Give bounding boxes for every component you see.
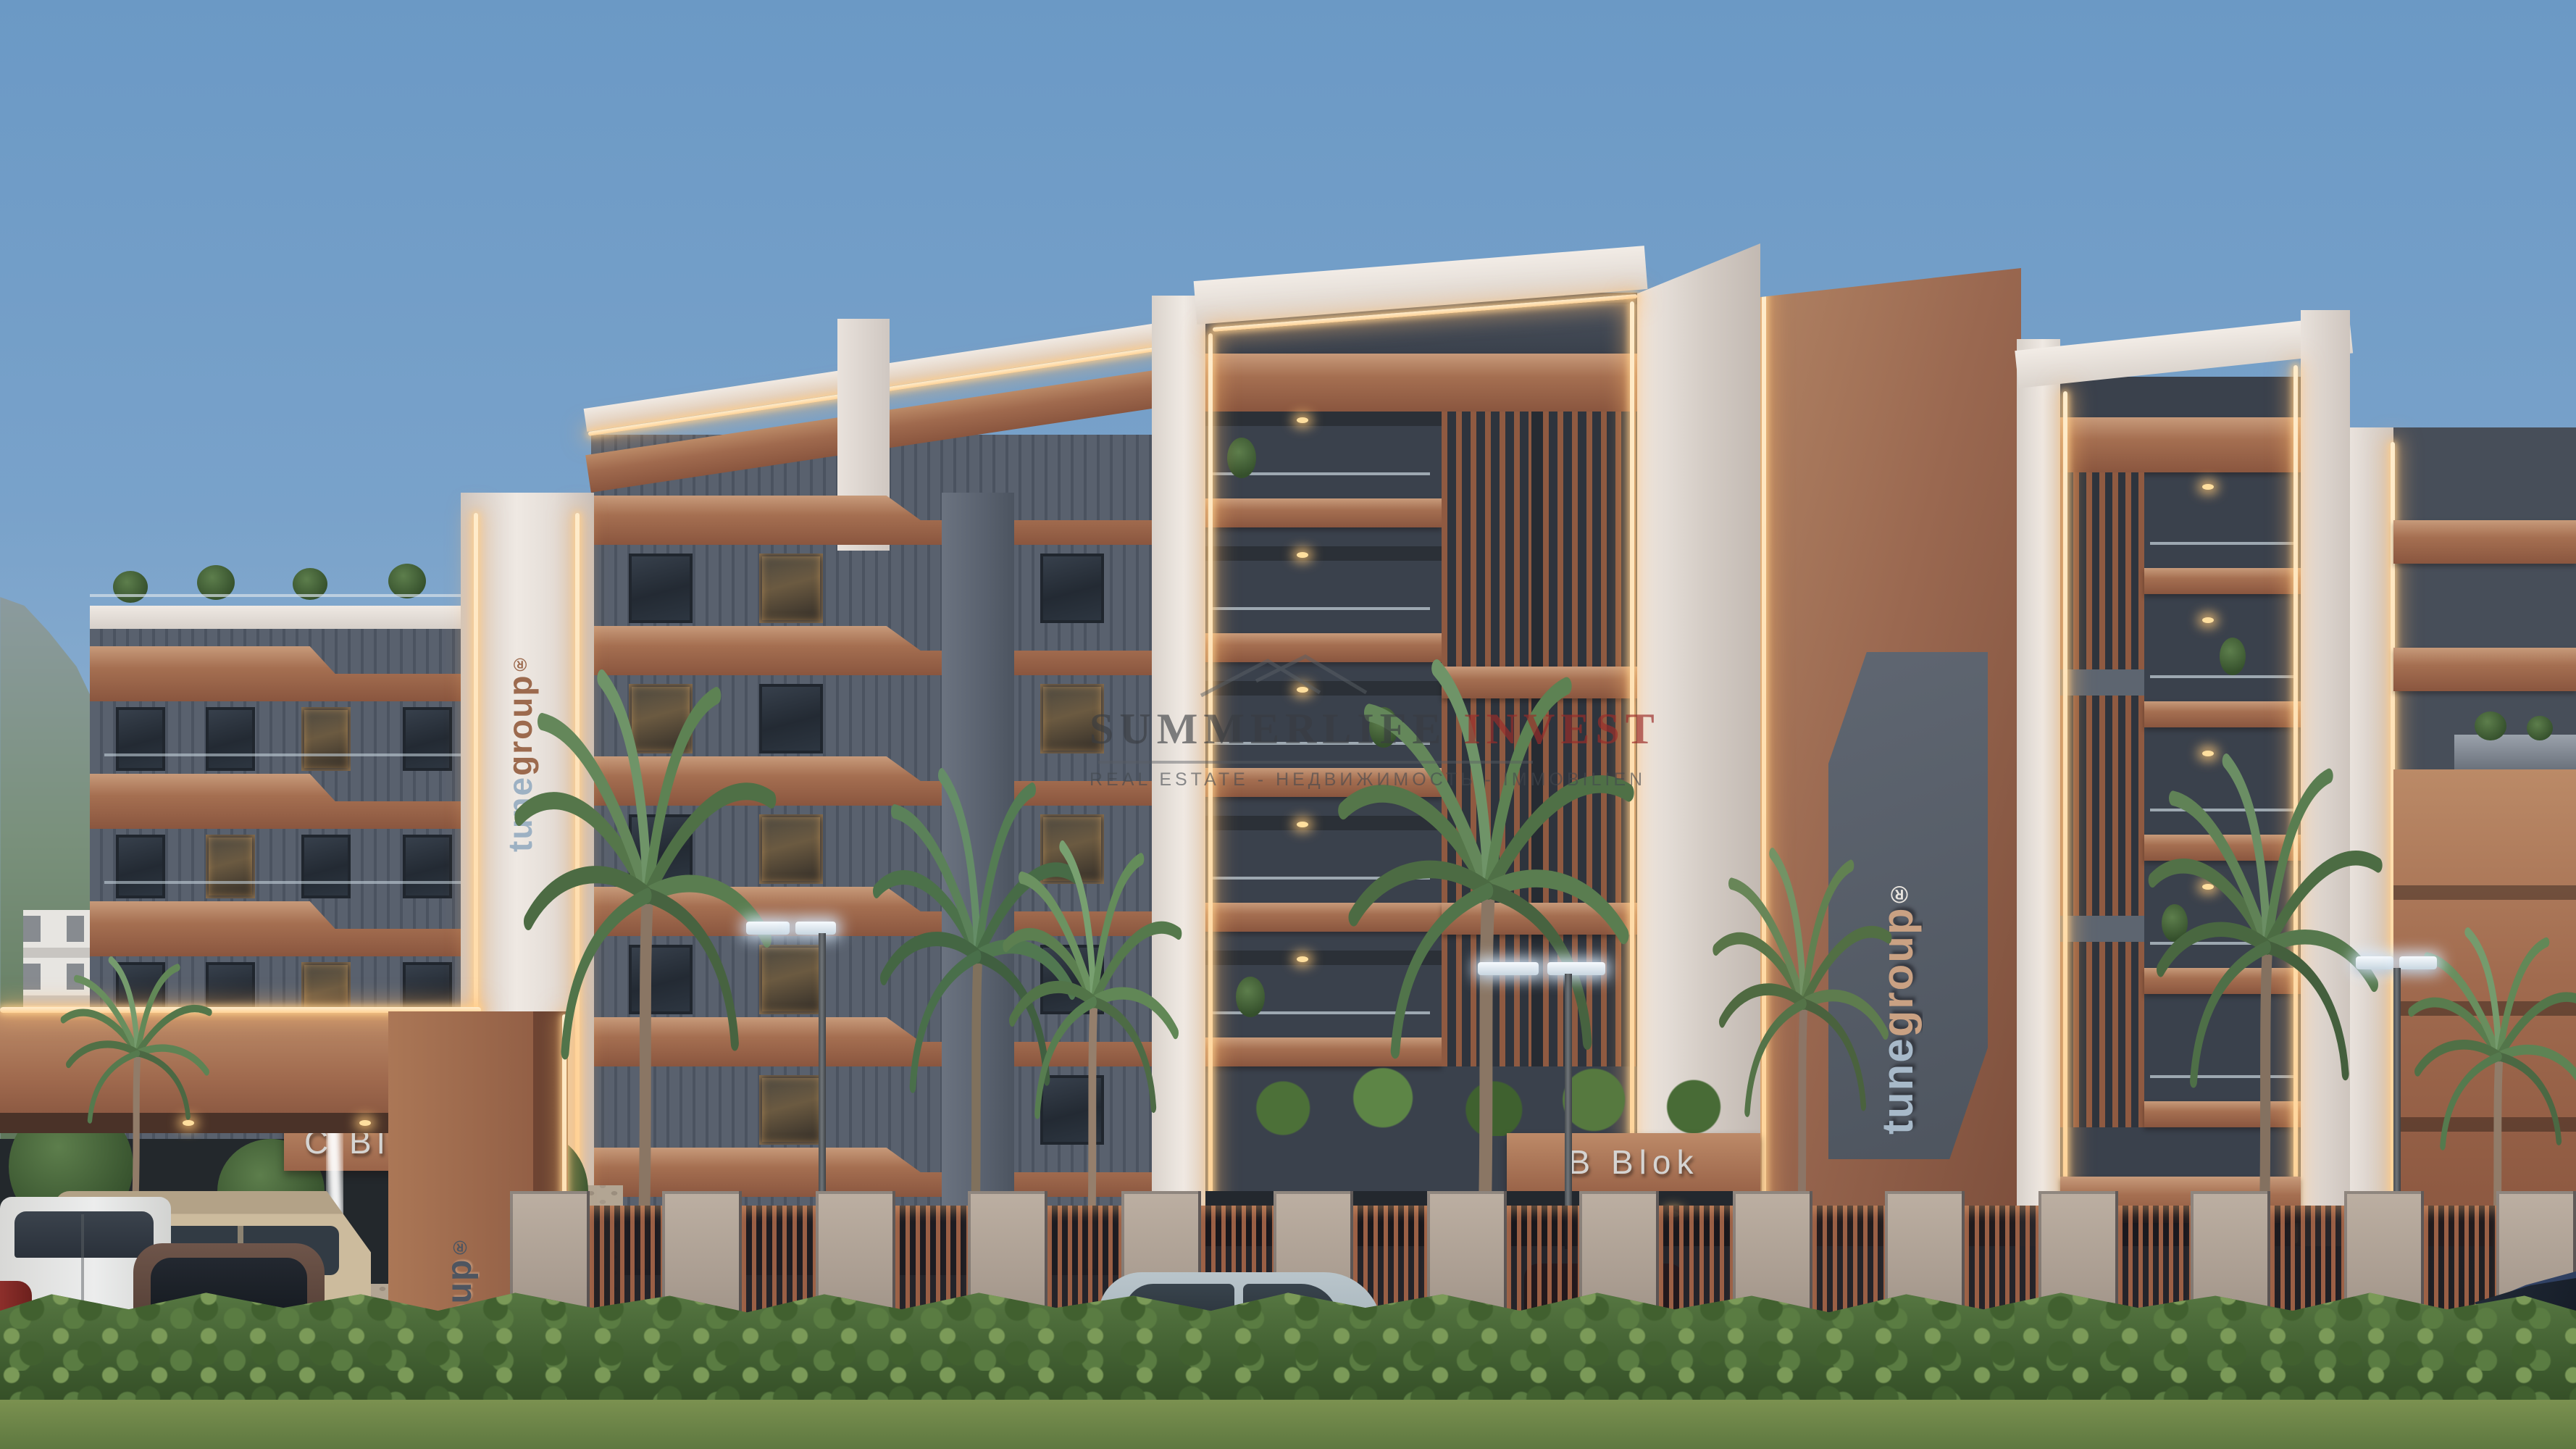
frame-left-beam <box>2017 339 2060 1246</box>
watermark-subtitle: REAL ESTATE - НЕДВИЖИМОСТЬ - IMMOBILIEN <box>1090 769 1542 790</box>
floor-shadow-line <box>2393 885 2576 900</box>
balcony-spandrel <box>2144 701 2301 727</box>
rooftop-tree <box>113 571 148 603</box>
window <box>1040 554 1104 623</box>
header-copper-band <box>2060 417 2301 472</box>
copper-band <box>2393 520 2576 564</box>
balcony-spandrel <box>2144 568 2301 594</box>
registered-mark: ® <box>449 1235 471 1258</box>
glass-balustrade <box>2150 675 2295 678</box>
louver-connector <box>2060 916 2144 942</box>
balcony-plant <box>1227 438 1256 478</box>
lamp-head <box>2399 956 2437 969</box>
louver-screen <box>2060 472 2144 1127</box>
led-strip <box>2063 391 2067 1243</box>
watermark-title-primary: SUMMERLIFE <box>1090 706 1463 753</box>
window <box>403 835 452 898</box>
glass-balustrade <box>1213 607 1430 610</box>
terrace-tree <box>2527 716 2553 740</box>
rooftop-railing <box>90 594 513 597</box>
architectural-render-scene: tunegroup® <box>0 0 2576 1449</box>
watermark: SUMMERLIFE INVEST REAL ESTATE - НЕДВИЖИМ… <box>1090 649 1542 809</box>
downlight <box>1297 822 1308 827</box>
watermark-divider <box>1098 761 1533 764</box>
lamp-head <box>746 922 790 935</box>
downlight <box>1297 552 1308 558</box>
louver-connector <box>2060 669 2144 696</box>
rooftop-tree <box>388 564 426 598</box>
balcony-plant <box>1236 977 1265 1017</box>
balcony-ceiling <box>1205 412 1442 426</box>
render-viewport: tunegroup® <box>0 0 2576 1449</box>
lamp-head <box>2356 956 2393 969</box>
glass-balustrade <box>104 753 467 756</box>
downlight <box>1297 417 1308 423</box>
window <box>403 707 452 771</box>
header-copper-band <box>1205 354 1637 412</box>
downlight <box>2202 484 2214 490</box>
copper-band <box>2393 648 2576 691</box>
window <box>301 835 351 898</box>
window <box>206 707 255 771</box>
watermark-title-accent: INVEST <box>1463 706 1660 753</box>
window <box>629 554 693 623</box>
palm-tree <box>510 669 785 1278</box>
glass-balustrade <box>2150 542 2295 545</box>
balcony-spandrel <box>1205 498 1442 527</box>
downlight <box>2202 617 2214 623</box>
watermark-title: SUMMERLIFE INVEST <box>1090 706 1542 755</box>
window <box>116 707 165 771</box>
lamp-head <box>795 922 836 935</box>
terrace-tree <box>2475 711 2506 740</box>
balcony-plant <box>2220 638 2246 675</box>
downlight <box>359 1120 371 1126</box>
window <box>759 554 823 623</box>
palm-bush <box>58 956 217 1217</box>
glass-balustrade <box>104 881 467 884</box>
rooftop-parapet <box>90 606 513 629</box>
watermark-mountain-logo <box>1192 649 1439 698</box>
window <box>116 835 165 898</box>
roof-terrace <box>2454 735 2576 769</box>
window <box>301 707 351 771</box>
window <box>206 835 255 898</box>
lamp-head <box>1478 962 1539 975</box>
balcony-ceiling <box>1205 546 1442 561</box>
lamp-head <box>1547 962 1605 975</box>
downlight <box>1297 956 1308 962</box>
grass-strip <box>0 1400 2576 1449</box>
